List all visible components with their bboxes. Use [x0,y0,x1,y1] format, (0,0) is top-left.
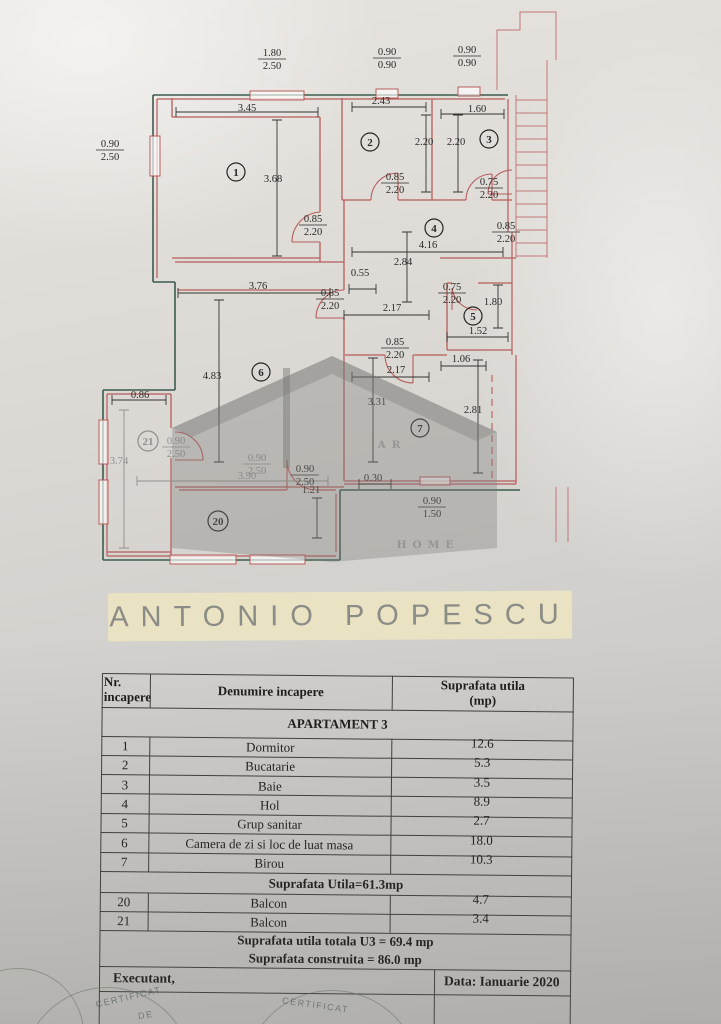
row-name: Grup sanitar [148,814,390,836]
agency-name: ANTONIO POPESCU [109,598,571,634]
row-area: 10.3 [390,849,572,870]
row-area: 4.7 [390,889,572,910]
row-area: 5.3 [391,752,573,773]
row-nr: 2 [101,755,149,775]
row-area: 12.6 [391,733,573,754]
row-nr: 6 [100,833,148,853]
row-area: 8.9 [391,791,573,812]
watermark: AR HOME [0,0,721,580]
header-nr: Nr. [104,675,150,689]
row-name: Balcon [148,892,390,913]
row-nr: 3 [101,775,149,795]
row-name: Camera de zi si loc de luat masa [148,833,390,855]
row-nr: 5 [100,813,148,833]
watermark-house-icon [172,356,497,562]
header-denumire: Denumire incapere [150,673,392,709]
watermark-text-ar: AR [377,439,407,451]
row-name: Baie [149,775,391,797]
header-nr-2: incapere [104,690,150,704]
header-suprafata-unit: (mp) [392,692,574,709]
watermark-text-home: HOME [397,539,460,551]
row-nr: 4 [101,794,149,814]
row-nr: 20 [100,892,148,911]
footer-executant: Executant, [113,966,263,992]
scanned-document: 3.452.431.603.682.202.204.162.840.553.76… [0,0,721,1024]
row-name: Hol [149,795,391,817]
row-nr: 21 [100,911,148,930]
row-area: 3.5 [391,771,573,792]
row-name: Balcon [148,911,390,932]
row-name: Dormitor [149,736,391,758]
row-nr: 7 [100,852,148,872]
agency-banner: ANTONIO POPESCU [108,591,572,642]
row-area: 18.0 [390,830,572,851]
row-area: 3.4 [390,908,572,929]
row-name: Bucatarie [149,756,391,778]
row-area: 2.7 [391,810,573,831]
watermark-bar [283,368,290,468]
table-border [434,969,436,1024]
stamp-circle-far-left [0,968,84,1024]
footer-date: Data: Ianuarie 2020 [444,969,584,995]
area-table: Nr.incapereDenumire incapereSuprafata ut… [99,673,574,1024]
row-nr: 1 [101,736,149,756]
header-suprafata: Suprafata utila [392,677,574,694]
